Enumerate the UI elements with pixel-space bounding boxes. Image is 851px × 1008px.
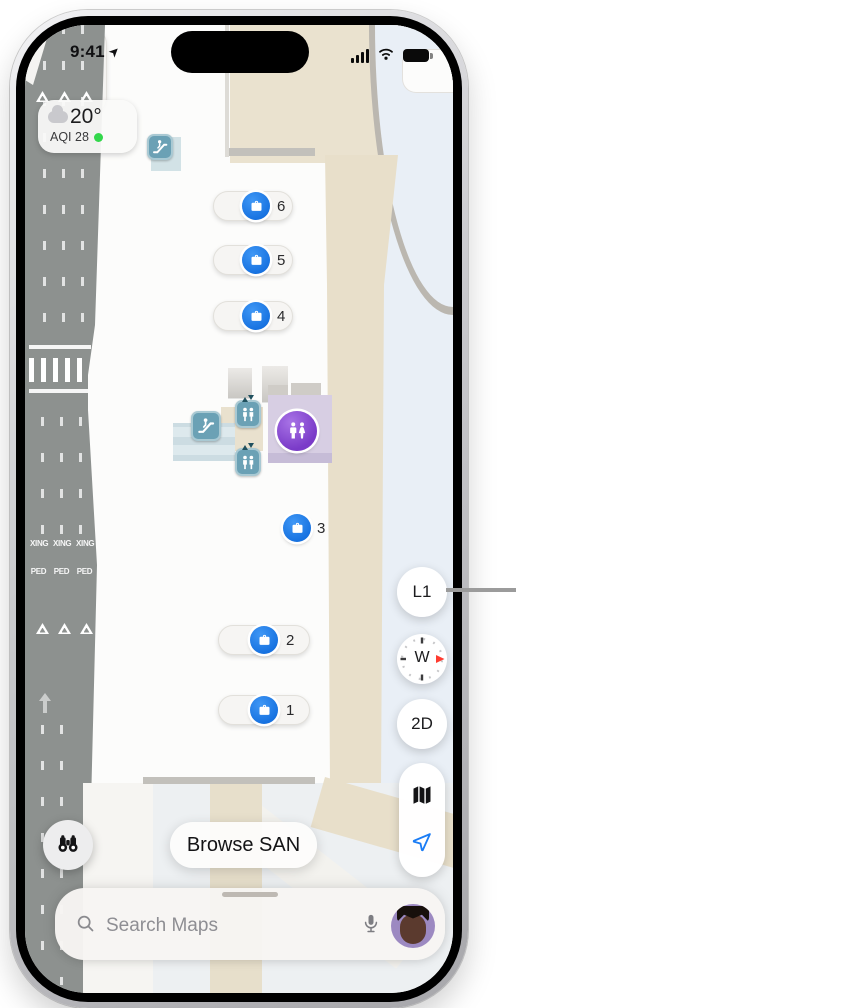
baggage-claim-icon — [242, 192, 270, 220]
search-input[interactable] — [106, 915, 351, 937]
iphone-bezel: XING XING XING PED PED PED — [16, 16, 462, 1002]
escalator-icon[interactable] — [191, 411, 221, 441]
dynamic-island — [171, 31, 309, 73]
claim-number: 3 — [317, 515, 325, 543]
baggage-claim-icon — [242, 302, 270, 330]
aqi-label: AQI 28 — [50, 130, 89, 144]
claim-number: 6 — [277, 193, 285, 221]
claim-number: 1 — [286, 697, 294, 725]
weather-widget[interactable]: 20° AQI 28 — [38, 100, 137, 153]
search-sheet — [55, 888, 445, 960]
iphone-device-frame: XING XING XING PED PED PED — [10, 10, 468, 1008]
crosswalk — [29, 358, 87, 382]
wall-block — [228, 368, 252, 398]
search-bar — [75, 904, 433, 948]
restroom-icon[interactable] — [277, 411, 317, 451]
claim-number: 5 — [277, 247, 285, 275]
elevator-icon[interactable] — [235, 448, 261, 476]
cloud-icon — [48, 111, 68, 123]
map-mode-icon[interactable] — [410, 783, 434, 812]
callout-line — [446, 588, 516, 592]
binoculars-icon — [55, 830, 81, 861]
compass-direction-label: W — [397, 649, 447, 667]
baggage-claim-icon — [250, 696, 278, 724]
lane-marking — [81, 25, 84, 325]
map-bottom-wall — [143, 777, 315, 784]
browse-airport-button[interactable]: Browse SAN — [170, 822, 317, 868]
lane-marking — [62, 25, 65, 335]
lane-marking — [60, 417, 63, 537]
aqi-status-dot — [94, 133, 103, 142]
wifi-icon — [376, 45, 396, 66]
claim-number: 4 — [277, 303, 285, 331]
road-text-xing: XING XING XING — [30, 539, 93, 548]
baggage-claim-icon[interactable] — [283, 514, 311, 542]
baggage-claim-4[interactable]: 4 — [213, 301, 293, 331]
compass-button[interactable]: W — [397, 634, 447, 684]
road-text-ped: PED PED PED — [30, 567, 93, 576]
current-location-button[interactable] — [411, 831, 433, 858]
yield-triangles — [36, 623, 93, 634]
baggage-claim-icon — [242, 246, 270, 274]
lane-marking — [41, 725, 44, 985]
stop-line — [29, 345, 91, 349]
stop-line — [29, 389, 88, 393]
status-bar-right — [351, 45, 430, 66]
map-hall-top-wall — [229, 148, 315, 156]
cellular-signal-icon — [351, 49, 370, 63]
baggage-claim-icon — [250, 626, 278, 654]
level-selector-button[interactable]: L1 — [397, 567, 447, 617]
view-mode-2d-button[interactable]: 2D — [397, 699, 447, 749]
status-bar-left: 9:41 ➤ — [70, 42, 120, 62]
clock: 9:41 — [70, 42, 105, 62]
baggage-claim-2[interactable]: 2 — [218, 625, 310, 655]
lane-direction-arrow — [39, 693, 51, 713]
temperature: 20° — [70, 105, 102, 129]
look-around-button[interactable] — [43, 820, 93, 870]
elevator-icon[interactable] — [235, 400, 261, 428]
baggage-claim-5[interactable]: 5 — [213, 245, 293, 275]
claim-number: 2 — [286, 627, 294, 655]
maps-app-screen: XING XING XING PED PED PED — [25, 25, 453, 993]
lane-marking — [79, 417, 82, 537]
sheet-drag-handle[interactable] — [222, 892, 278, 897]
lane-marking — [41, 417, 44, 537]
user-avatar[interactable] — [391, 904, 435, 948]
escalator-icon[interactable] — [147, 134, 173, 160]
lane-marking — [43, 25, 46, 335]
battery-icon — [403, 49, 429, 62]
magnifier-icon — [75, 913, 96, 939]
baggage-claim-6[interactable]: 6 — [213, 191, 293, 221]
baggage-claim-1[interactable]: 1 — [218, 695, 310, 725]
location-nav-icon: ➤ — [105, 42, 124, 61]
map-mode-control — [399, 763, 445, 877]
microphone-icon[interactable] — [361, 912, 381, 941]
figure-canvas: XING XING XING PED PED PED — [0, 0, 851, 1008]
